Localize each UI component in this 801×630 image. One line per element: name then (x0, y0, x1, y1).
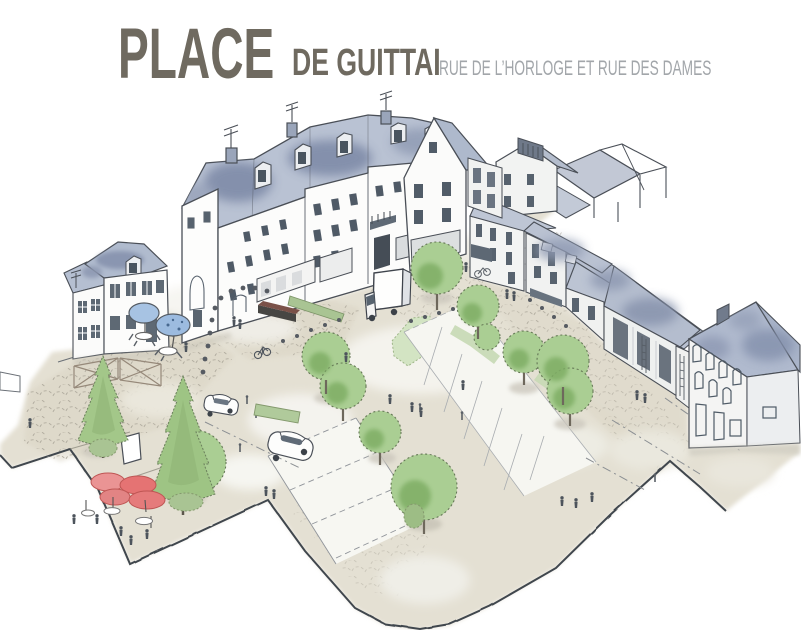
svg-text:DE GUITTAI: DE GUITTAI (292, 40, 441, 83)
svg-text:RUE DE L’HORLOGE ET RUE DES DA: RUE DE L’HORLOGE ET RUE DES DAMES (439, 56, 711, 80)
svg-text:PLACE: PLACE (118, 14, 274, 94)
